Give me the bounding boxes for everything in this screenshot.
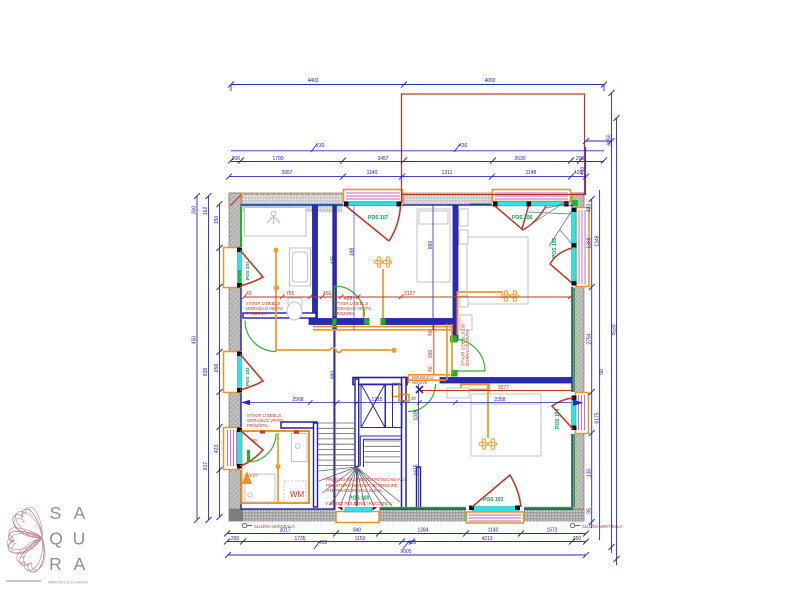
svg-text:POS 105: POS 105 (552, 237, 558, 258)
svg-text:150: 150 (214, 216, 220, 225)
svg-text:2568: 2568 (292, 397, 303, 403)
svg-text:1215: 1215 (371, 397, 382, 403)
svg-text:433: 433 (587, 204, 593, 213)
svg-text:40: 40 (428, 366, 434, 372)
svg-text:2057: 2057 (281, 170, 292, 176)
svg-text:+: + (12, 538, 15, 544)
svg-text:400: 400 (580, 167, 586, 176)
svg-text:200: 200 (576, 156, 585, 162)
svg-text:838: 838 (203, 368, 209, 377)
svg-text:2127: 2127 (404, 291, 415, 297)
svg-text:1284: 1284 (417, 528, 428, 534)
svg-text:3457: 3457 (377, 156, 388, 162)
svg-text:450: 450 (192, 336, 198, 345)
svg-text:A: A (74, 554, 86, 574)
svg-text:1572: 1572 (546, 528, 557, 534)
svg-text:40: 40 (252, 438, 257, 443)
svg-text:1700: 1700 (272, 156, 283, 162)
svg-text:425: 425 (331, 256, 337, 265)
svg-text:1615: 1615 (414, 464, 420, 475)
svg-text:OGRANILO VRATA: OGRANILO VRATA (465, 329, 470, 366)
svg-text:1735: 1735 (294, 536, 305, 542)
svg-text:817: 817 (203, 462, 209, 471)
svg-text:430: 430 (459, 143, 468, 149)
svg-text:+: + (22, 519, 25, 525)
svg-text:423: 423 (214, 445, 220, 454)
svg-text:POS 103: POS 103 (483, 497, 504, 503)
svg-text:95: 95 (587, 508, 593, 514)
svg-text:POS 101: POS 101 (245, 261, 250, 280)
svg-text:456: 456 (323, 291, 332, 297)
svg-text:U: U (73, 529, 86, 549)
svg-text:PROZORA: PROZORA (334, 311, 355, 316)
svg-text:650: 650 (214, 364, 220, 373)
svg-text:2630: 2630 (514, 156, 525, 162)
svg-text:4213: 4213 (481, 536, 492, 542)
svg-text:PROZORA: PROZORA (246, 311, 267, 316)
svg-text:430: 430 (319, 540, 328, 546)
svg-text:40: 40 (411, 396, 416, 401)
svg-text:130: 130 (316, 143, 325, 149)
svg-text:PREDZID NA OPIRATU POVECANI A: PREDZID NA OPIRATU POVECANI A U (326, 477, 405, 482)
svg-text:130: 130 (587, 469, 593, 478)
svg-text:1035: 1035 (414, 409, 420, 420)
svg-text:9005: 9005 (400, 549, 411, 555)
svg-text:162: 162 (203, 207, 209, 216)
svg-text:2754: 2754 (587, 333, 593, 344)
svg-text:40: 40 (246, 291, 252, 297)
svg-text:STEPENICE PREKO SLESA: STEPENICE PREKO SLESA (326, 488, 383, 493)
svg-text:+: + (22, 555, 25, 561)
svg-text:4403: 4403 (307, 78, 318, 84)
svg-text:1311: 1311 (442, 170, 453, 176)
svg-text:1368: 1368 (587, 237, 593, 248)
svg-text:1140: 1140 (488, 528, 499, 534)
svg-text:8175: 8175 (595, 412, 601, 423)
svg-text:S: S (50, 503, 62, 523)
svg-text:990: 990 (331, 371, 337, 380)
svg-text:POS 102: POS 102 (245, 367, 250, 386)
svg-text:200: 200 (231, 536, 240, 542)
svg-text:1140: 1140 (367, 170, 378, 176)
svg-text:3277: 3277 (498, 385, 509, 391)
svg-text:765: 765 (286, 291, 295, 297)
svg-text:PROZORA: PROZORA (247, 423, 268, 428)
svg-text:1348: 1348 (595, 235, 601, 246)
svg-text:POS 106: POS 106 (512, 215, 533, 221)
svg-text:890: 890 (428, 349, 434, 358)
svg-text:F20 BEZ ROLETNE I KUCISTE A: F20 BEZ ROLETNE I KUCISTE A (326, 501, 392, 506)
svg-text:POS 100: POS 100 (349, 496, 370, 502)
svg-text:940: 940 (353, 528, 362, 534)
svg-text:6950: 6950 (607, 134, 613, 145)
svg-text:Q: Q (49, 529, 63, 549)
svg-text:NOSIVE: NOSIVE (412, 380, 428, 385)
svg-text:300: 300 (192, 206, 198, 215)
svg-text:50: 50 (599, 369, 605, 375)
svg-text:POS 107: POS 107 (368, 215, 389, 221)
svg-text:WM: WM (290, 490, 305, 499)
svg-text:1150: 1150 (355, 536, 366, 542)
svg-text:2358: 2358 (494, 397, 505, 403)
svg-text:KOT: KOT (250, 473, 259, 478)
svg-text:430: 430 (408, 540, 417, 546)
svg-text:1148: 1148 (526, 170, 537, 176)
svg-text:IMMOBILIEN GMBH: IMMOBILIEN GMBH (48, 581, 89, 585)
svg-text:R: R (49, 554, 62, 574)
svg-text:POS 104: POS 104 (555, 408, 561, 429)
svg-text:860: 860 (428, 241, 434, 250)
svg-text:A: A (74, 503, 86, 523)
svg-text:40: 40 (428, 330, 434, 336)
svg-text:2017: 2017 (279, 528, 290, 534)
svg-text:200: 200 (232, 156, 241, 162)
svg-text:350: 350 (573, 536, 582, 542)
svg-text:4530: 4530 (612, 324, 618, 335)
svg-text:188: 188 (350, 248, 356, 257)
svg-text:4092: 4092 (484, 78, 495, 84)
